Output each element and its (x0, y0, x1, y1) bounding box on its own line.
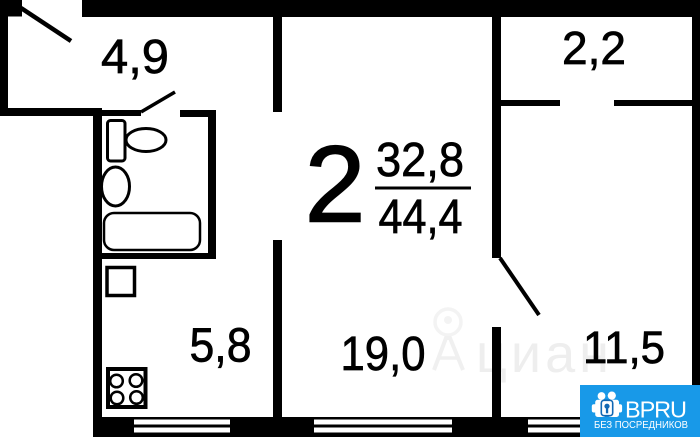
svg-text:2,2: 2,2 (562, 22, 626, 74)
svg-text:БЕЗ ПОСРЕДНИКОВ: БЕЗ ПОСРЕДНИКОВ (594, 420, 688, 431)
svg-text:5,8: 5,8 (190, 320, 252, 373)
svg-text:44,4: 44,4 (379, 191, 463, 244)
svg-text:2: 2 (305, 124, 366, 246)
svg-text:BPRU: BPRU (625, 397, 686, 423)
svg-text:32,8: 32,8 (376, 134, 464, 187)
svg-text:4,9: 4,9 (101, 31, 169, 84)
svg-text:11,5: 11,5 (583, 322, 665, 373)
svg-text:19,0: 19,0 (341, 328, 426, 381)
